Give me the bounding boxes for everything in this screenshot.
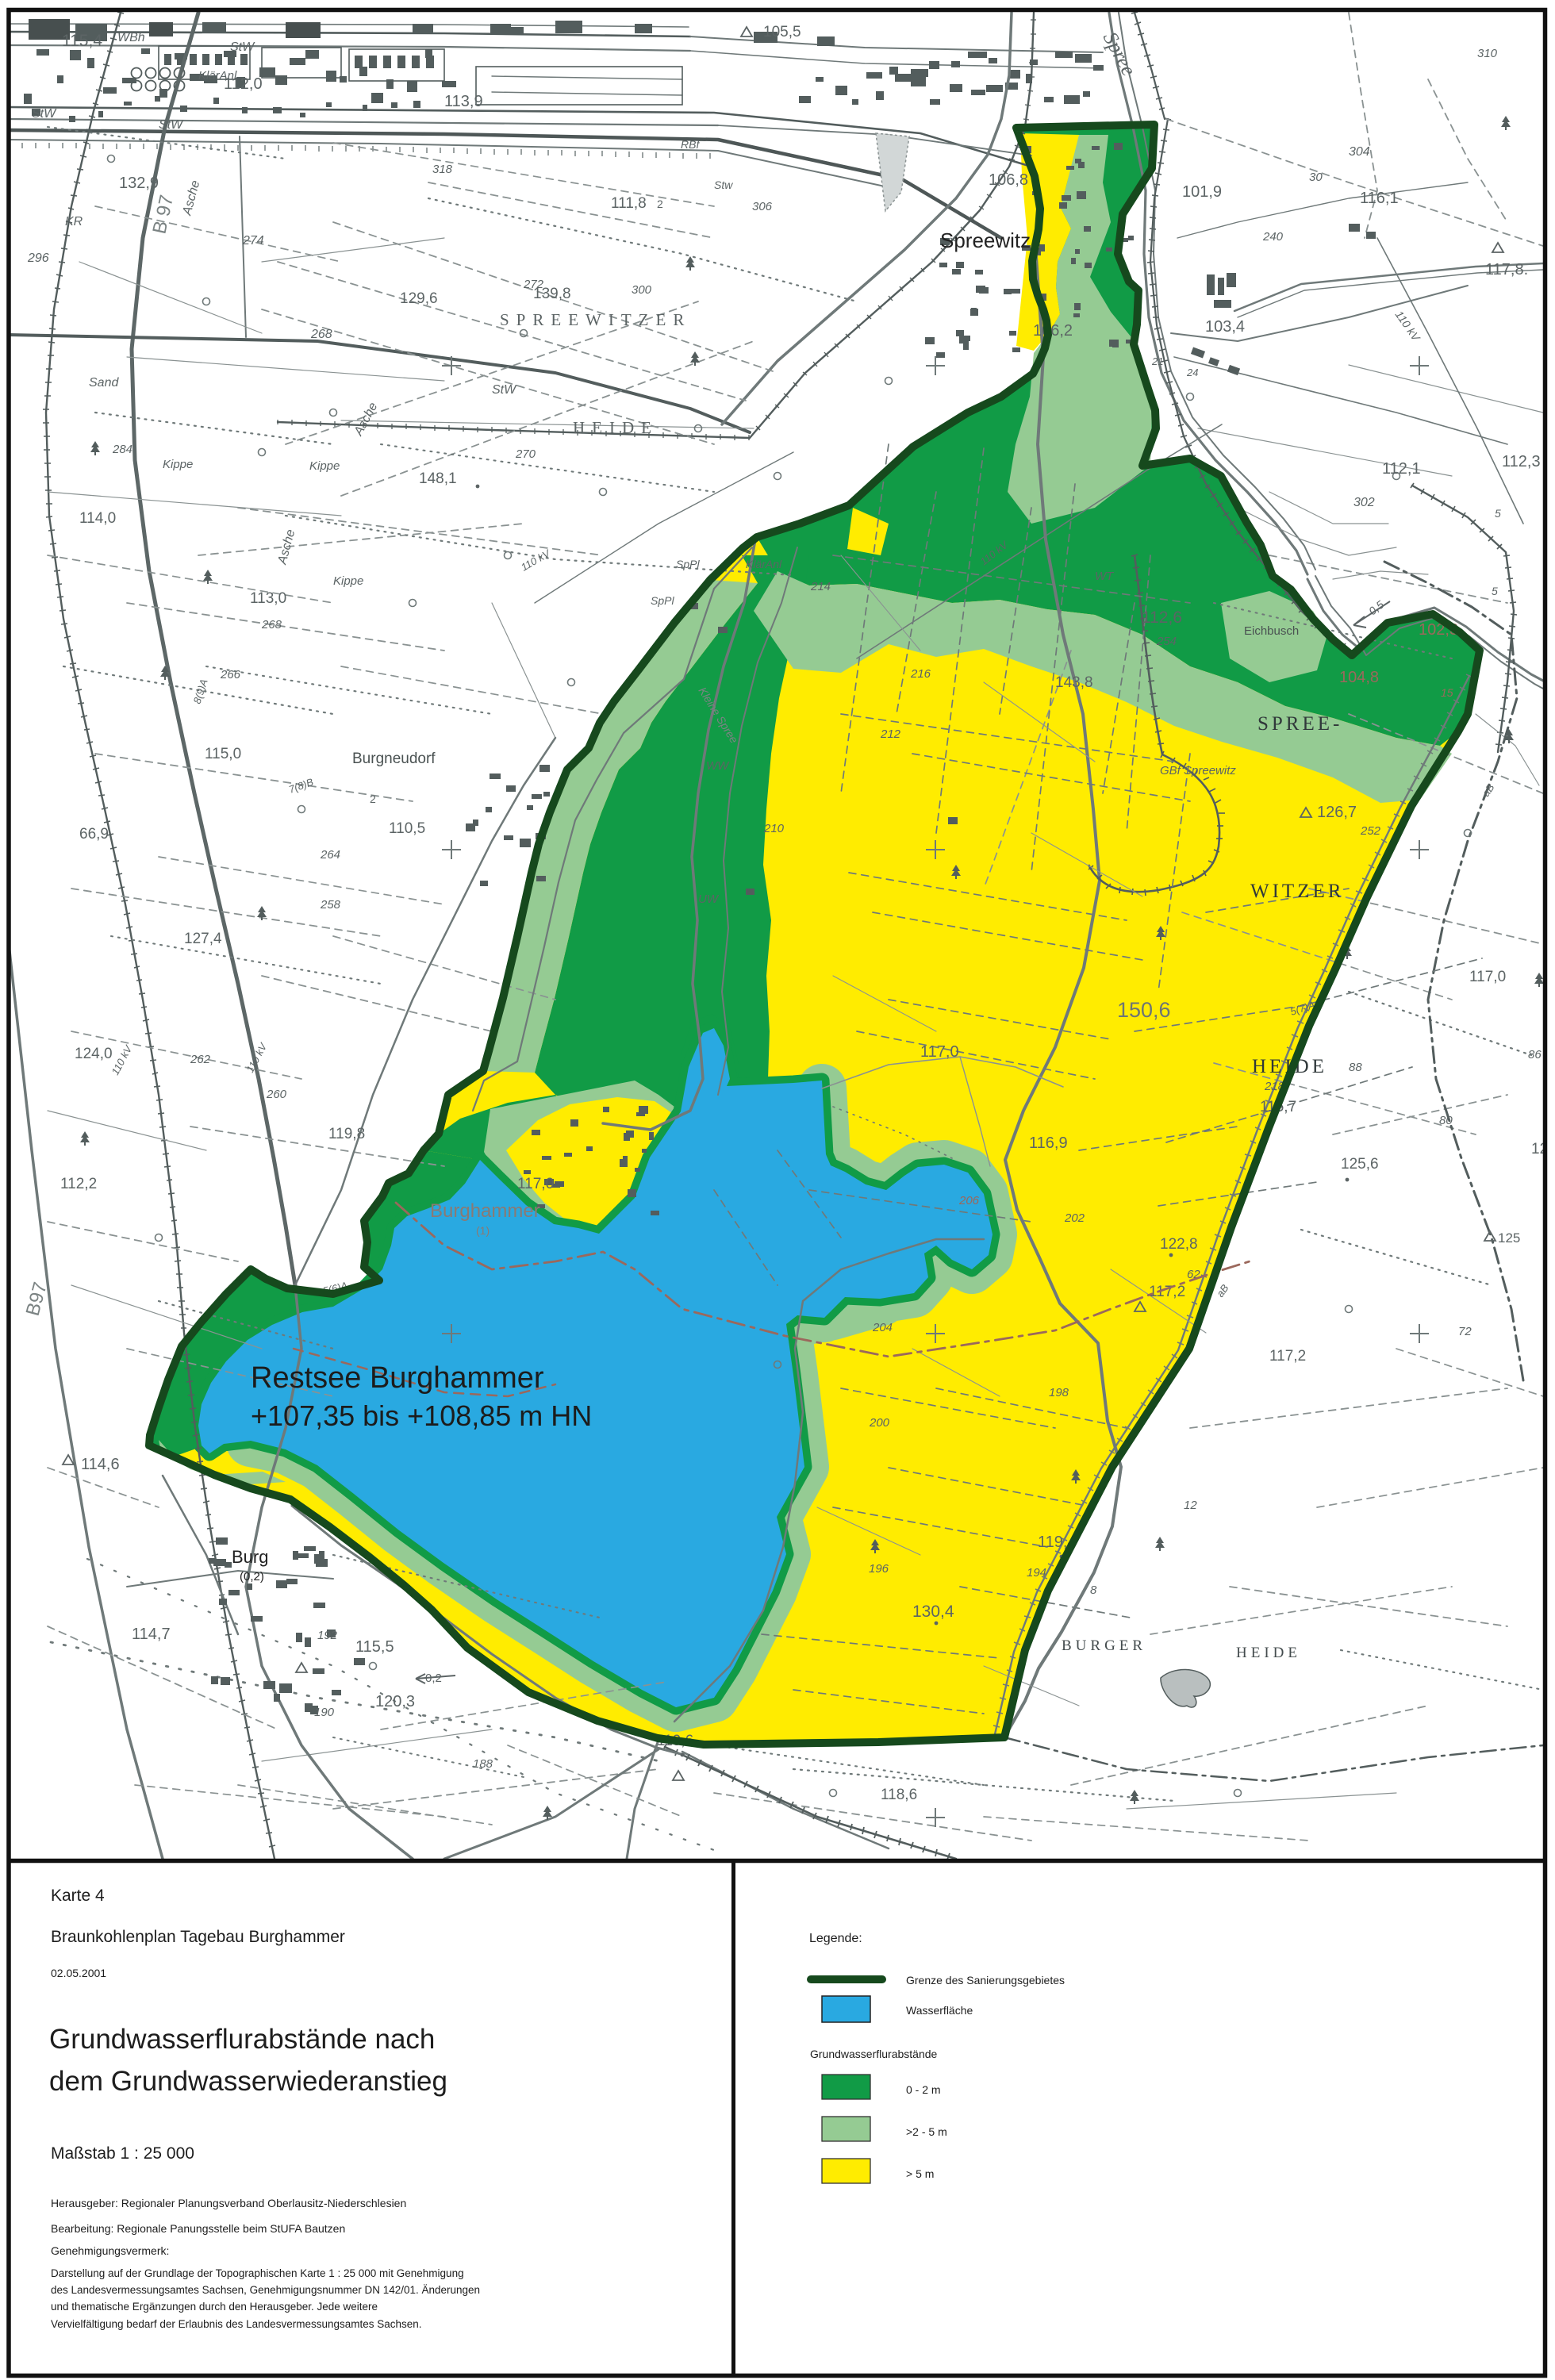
svg-text:116,1: 116,1	[1360, 190, 1399, 207]
svg-text:143,8: 143,8	[1055, 674, 1093, 691]
svg-text:113,9: 113,9	[444, 93, 483, 110]
svg-text:RBf: RBf	[681, 138, 701, 151]
svg-text:148,1: 148,1	[419, 470, 457, 487]
svg-text:129,6: 129,6	[400, 290, 438, 307]
svg-text:262: 262	[190, 1053, 211, 1066]
svg-text:104,8: 104,8	[1339, 669, 1379, 686]
svg-text:112,2: 112,2	[60, 1176, 97, 1192]
svg-text:274: 274	[242, 234, 264, 248]
svg-text:198: 198	[1049, 1386, 1069, 1399]
svg-text:266: 266	[220, 668, 241, 681]
svg-text:240: 240	[1262, 230, 1284, 244]
svg-text:Legende:: Legende:	[809, 1932, 862, 1945]
svg-text:115,5: 115,5	[355, 1638, 394, 1656]
svg-text:113,0: 113,0	[250, 590, 286, 607]
svg-text:260: 260	[266, 1088, 287, 1101]
svg-text:200: 200	[869, 1416, 890, 1430]
svg-text:86: 86	[1528, 1048, 1542, 1061]
svg-text:Maßstab 1 : 25 000: Maßstab 1 : 25 000	[51, 2144, 194, 2163]
svg-text:SPREE-: SPREE-	[1257, 713, 1342, 735]
svg-text:Kippe: Kippe	[333, 574, 363, 588]
svg-text:306: 306	[752, 200, 773, 213]
svg-text:Grundwasserflurabstände: Grundwasserflurabstände	[810, 2048, 938, 2060]
svg-text:>2 - 5 m: >2 - 5 m	[906, 2125, 947, 2138]
svg-text:StW: StW	[230, 40, 255, 54]
svg-text:114,0: 114,0	[79, 510, 116, 527]
svg-text:268: 268	[310, 328, 332, 341]
svg-text:210: 210	[763, 822, 785, 835]
svg-text:117,0: 117,0	[1469, 969, 1506, 985]
svg-text:StW: StW	[32, 107, 57, 121]
svg-text:103,4: 103,4	[1205, 318, 1245, 336]
svg-text:> 5 m: > 5 m	[906, 2167, 934, 2180]
svg-text:120,3: 120,3	[375, 1693, 415, 1710]
svg-text:310: 310	[1477, 47, 1498, 60]
svg-text:66,9: 66,9	[79, 826, 109, 843]
svg-text:GBf Spreewitz: GBf Spreewitz	[1160, 764, 1236, 777]
svg-text:Kippe: Kippe	[163, 458, 193, 471]
svg-text:304: 304	[1349, 145, 1370, 159]
svg-text:125: 125	[1498, 1230, 1520, 1246]
svg-text:119,8: 119,8	[328, 1126, 365, 1142]
svg-text:114,6: 114,6	[81, 1456, 120, 1473]
svg-text:WT: WT	[1095, 570, 1115, 583]
svg-text:5: 5	[1495, 507, 1501, 520]
svg-text:202: 202	[1064, 1211, 1085, 1225]
svg-text:SPREEWITZER: SPREEWITZER	[500, 310, 691, 329]
svg-text:StW: StW	[159, 118, 184, 132]
svg-text:118,6: 118,6	[881, 1787, 917, 1803]
svg-text:127,4: 127,4	[184, 931, 222, 947]
svg-text:212: 212	[880, 727, 901, 741]
svg-text:Grundwasserflurabstände nach: Grundwasserflurabstände nach	[49, 2024, 435, 2055]
svg-text:116,9: 116,9	[1029, 1134, 1068, 1152]
svg-text:300: 300	[632, 283, 652, 297]
svg-text:HEIDE: HEIDE	[1236, 1645, 1301, 1661]
svg-text:125,6: 125,6	[1341, 1156, 1379, 1173]
svg-text:Genehmigungsvermerk:: Genehmigungsvermerk:	[51, 2244, 169, 2257]
svg-text:302: 302	[1353, 496, 1375, 509]
svg-text:130,4: 130,4	[912, 1603, 954, 1621]
svg-text:und thematische Ergänzungen du: und thematische Ergänzungen durch den He…	[51, 2301, 378, 2313]
svg-text:126,7: 126,7	[1317, 804, 1357, 821]
svg-text:Braunkohlenplan Tagebau Burgha: Braunkohlenplan Tagebau Burghammer	[51, 1928, 345, 1946]
svg-text:Herausgeber: Regionaler Plan: Herausgeber: Regionaler Planungsverband …	[51, 2197, 406, 2209]
svg-text:des Landesvermessungsamtes Sac: des Landesvermessungsamtes Sachsen, Gene…	[51, 2284, 480, 2296]
svg-text:268: 268	[261, 618, 282, 631]
svg-text:112,6: 112,6	[1142, 608, 1182, 627]
svg-text:284: 284	[112, 443, 132, 456]
svg-text:Bearbeitung: Regionale Panu: Bearbeitung: Regionale Panungsstelle bei…	[51, 2222, 345, 2235]
svg-text:318: 318	[432, 163, 453, 176]
svg-text:192: 192	[317, 1629, 338, 1642]
svg-text:8: 8	[1090, 1583, 1097, 1597]
svg-text:15: 15	[1441, 686, 1453, 699]
svg-text:80: 80	[1439, 1114, 1453, 1127]
svg-text:Burg: Burg	[232, 1547, 268, 1567]
svg-text:0 - 2 m: 0 - 2 m	[906, 2083, 941, 2096]
svg-text:StW: StW	[492, 383, 517, 397]
svg-text:214: 214	[810, 580, 831, 593]
svg-text:SpPl: SpPl	[651, 594, 674, 607]
svg-text:115,0: 115,0	[205, 746, 241, 762]
svg-text:105,5: 105,5	[763, 24, 801, 40]
svg-text:SpPl: SpPl	[676, 558, 700, 570]
svg-text:12: 12	[1184, 1499, 1197, 1512]
svg-text:258: 258	[320, 898, 341, 912]
svg-text:188: 188	[473, 1757, 493, 1771]
svg-text:Burgneudorf: Burgneudorf	[352, 750, 436, 767]
svg-text:132,9: 132,9	[119, 175, 159, 192]
svg-text:216: 216	[910, 667, 931, 681]
svg-text:HEIDE: HEIDE	[573, 418, 658, 437]
svg-text:106,8: 106,8	[989, 171, 1028, 189]
svg-text:Wasserfläche: Wasserfläche	[906, 2004, 973, 2017]
svg-text:101,9: 101,9	[1182, 183, 1222, 201]
svg-text:150,6: 150,6	[1117, 998, 1171, 1022]
svg-text:264: 264	[320, 848, 340, 862]
svg-text:88: 88	[1349, 1061, 1362, 1074]
svg-text:Stw: Stw	[714, 178, 733, 191]
svg-text:5: 5	[1492, 585, 1498, 597]
svg-text:(1): (1)	[476, 1224, 490, 1237]
svg-text:dem Grundwasserwiederanstieg: dem Grundwasserwiederanstieg	[49, 2066, 447, 2097]
svg-text:Burghammer: Burghammer	[430, 1200, 540, 1222]
svg-text:KlärAnl: KlärAnl	[746, 558, 782, 570]
svg-text:196: 196	[869, 1562, 889, 1576]
svg-text:117,8.: 117,8.	[1485, 261, 1528, 278]
svg-text:115,4: 115,4	[62, 32, 102, 50]
svg-text:194: 194	[1027, 1566, 1046, 1580]
svg-text:252: 252	[1360, 824, 1381, 838]
svg-text:112,3: 112,3	[1502, 453, 1541, 470]
svg-text:WW: WW	[706, 759, 730, 773]
svg-text:Grenze des Sanierungsgebietes: Grenze des Sanierungsgebietes	[906, 1974, 1065, 1987]
svg-text:30: 30	[1309, 171, 1323, 184]
svg-text:206: 206	[958, 1194, 980, 1207]
svg-text:BURGER: BURGER	[1062, 1637, 1146, 1654]
svg-text:21: 21	[1151, 355, 1163, 367]
svg-text:KlärAnl: KlärAnl	[198, 69, 237, 83]
svg-text:296: 296	[27, 251, 49, 265]
svg-text:117,0: 117,0	[517, 1176, 554, 1192]
svg-text:72: 72	[1458, 1325, 1472, 1338]
svg-text:114,7: 114,7	[132, 1626, 171, 1643]
svg-text:WBh: WBh	[117, 31, 145, 44]
svg-text:02.05.2001: 02.05.2001	[51, 1967, 106, 1979]
svg-text:272: 272	[523, 278, 544, 291]
svg-text:106,2: 106,2	[1033, 322, 1073, 340]
svg-text:WITZER: WITZER	[1250, 881, 1344, 902]
svg-text:124,0: 124,0	[75, 1046, 113, 1062]
svg-text:UW: UW	[698, 892, 720, 906]
svg-text:24: 24	[1186, 367, 1198, 378]
svg-text:117,2: 117,2	[1149, 1284, 1185, 1300]
svg-text:122,8: 122,8	[1160, 1236, 1198, 1253]
svg-text:Kippe: Kippe	[309, 459, 340, 473]
svg-text:270: 270	[515, 447, 536, 461]
svg-text:117,2: 117,2	[1269, 1348, 1306, 1365]
svg-text:204: 204	[872, 1321, 893, 1334]
svg-text:KR: KR	[65, 215, 83, 228]
svg-text:Vervielfältigung bedarf der Er: Vervielfältigung bedarf der Erlaubnis de…	[51, 2318, 422, 2330]
svg-text:190: 190	[314, 1706, 335, 1719]
svg-text:+107,35 bis +108,85 m HN: +107,35 bis +108,85 m HN	[251, 1399, 592, 1432]
svg-text:Sand: Sand	[89, 376, 119, 390]
svg-text:Spreewitz: Spreewitz	[940, 228, 1031, 252]
svg-text:2: 2	[370, 793, 376, 805]
svg-text:Eichbusch: Eichbusch	[1244, 624, 1299, 638]
svg-text:Darstellung auf der Grundlage: Darstellung auf der Grundlage der Topogr…	[51, 2267, 464, 2279]
svg-text:111,8: 111,8	[611, 195, 647, 212]
svg-text:(0,2): (0,2)	[240, 1570, 264, 1583]
svg-text:Karte 4: Karte 4	[51, 1887, 105, 1905]
svg-text:117,0: 117,0	[920, 1043, 959, 1061]
svg-text:110,5: 110,5	[389, 820, 425, 837]
svg-text:254: 254	[1156, 635, 1177, 648]
svg-text:Restsee Burghammer: Restsee Burghammer	[251, 1361, 544, 1395]
svg-text:2: 2	[657, 198, 663, 210]
svg-text:112,1: 112,1	[1382, 460, 1421, 478]
